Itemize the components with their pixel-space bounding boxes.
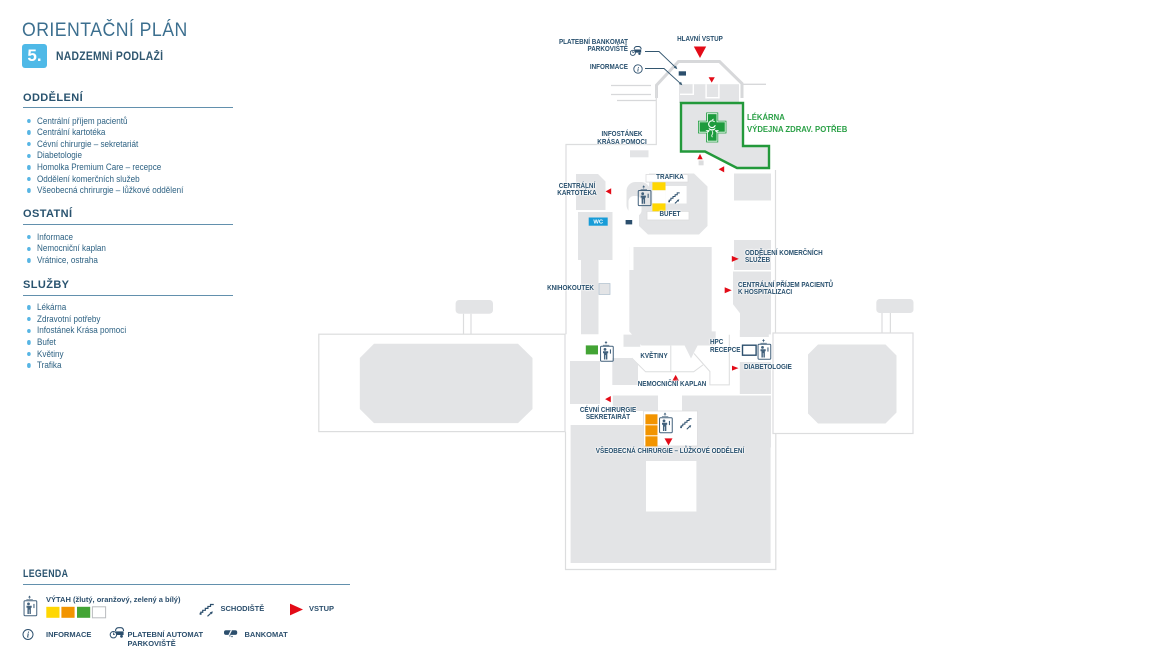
svg-text:WC: WC [593, 220, 603, 226]
svg-text:i: i [27, 631, 30, 640]
svg-text:i: i [637, 67, 639, 74]
